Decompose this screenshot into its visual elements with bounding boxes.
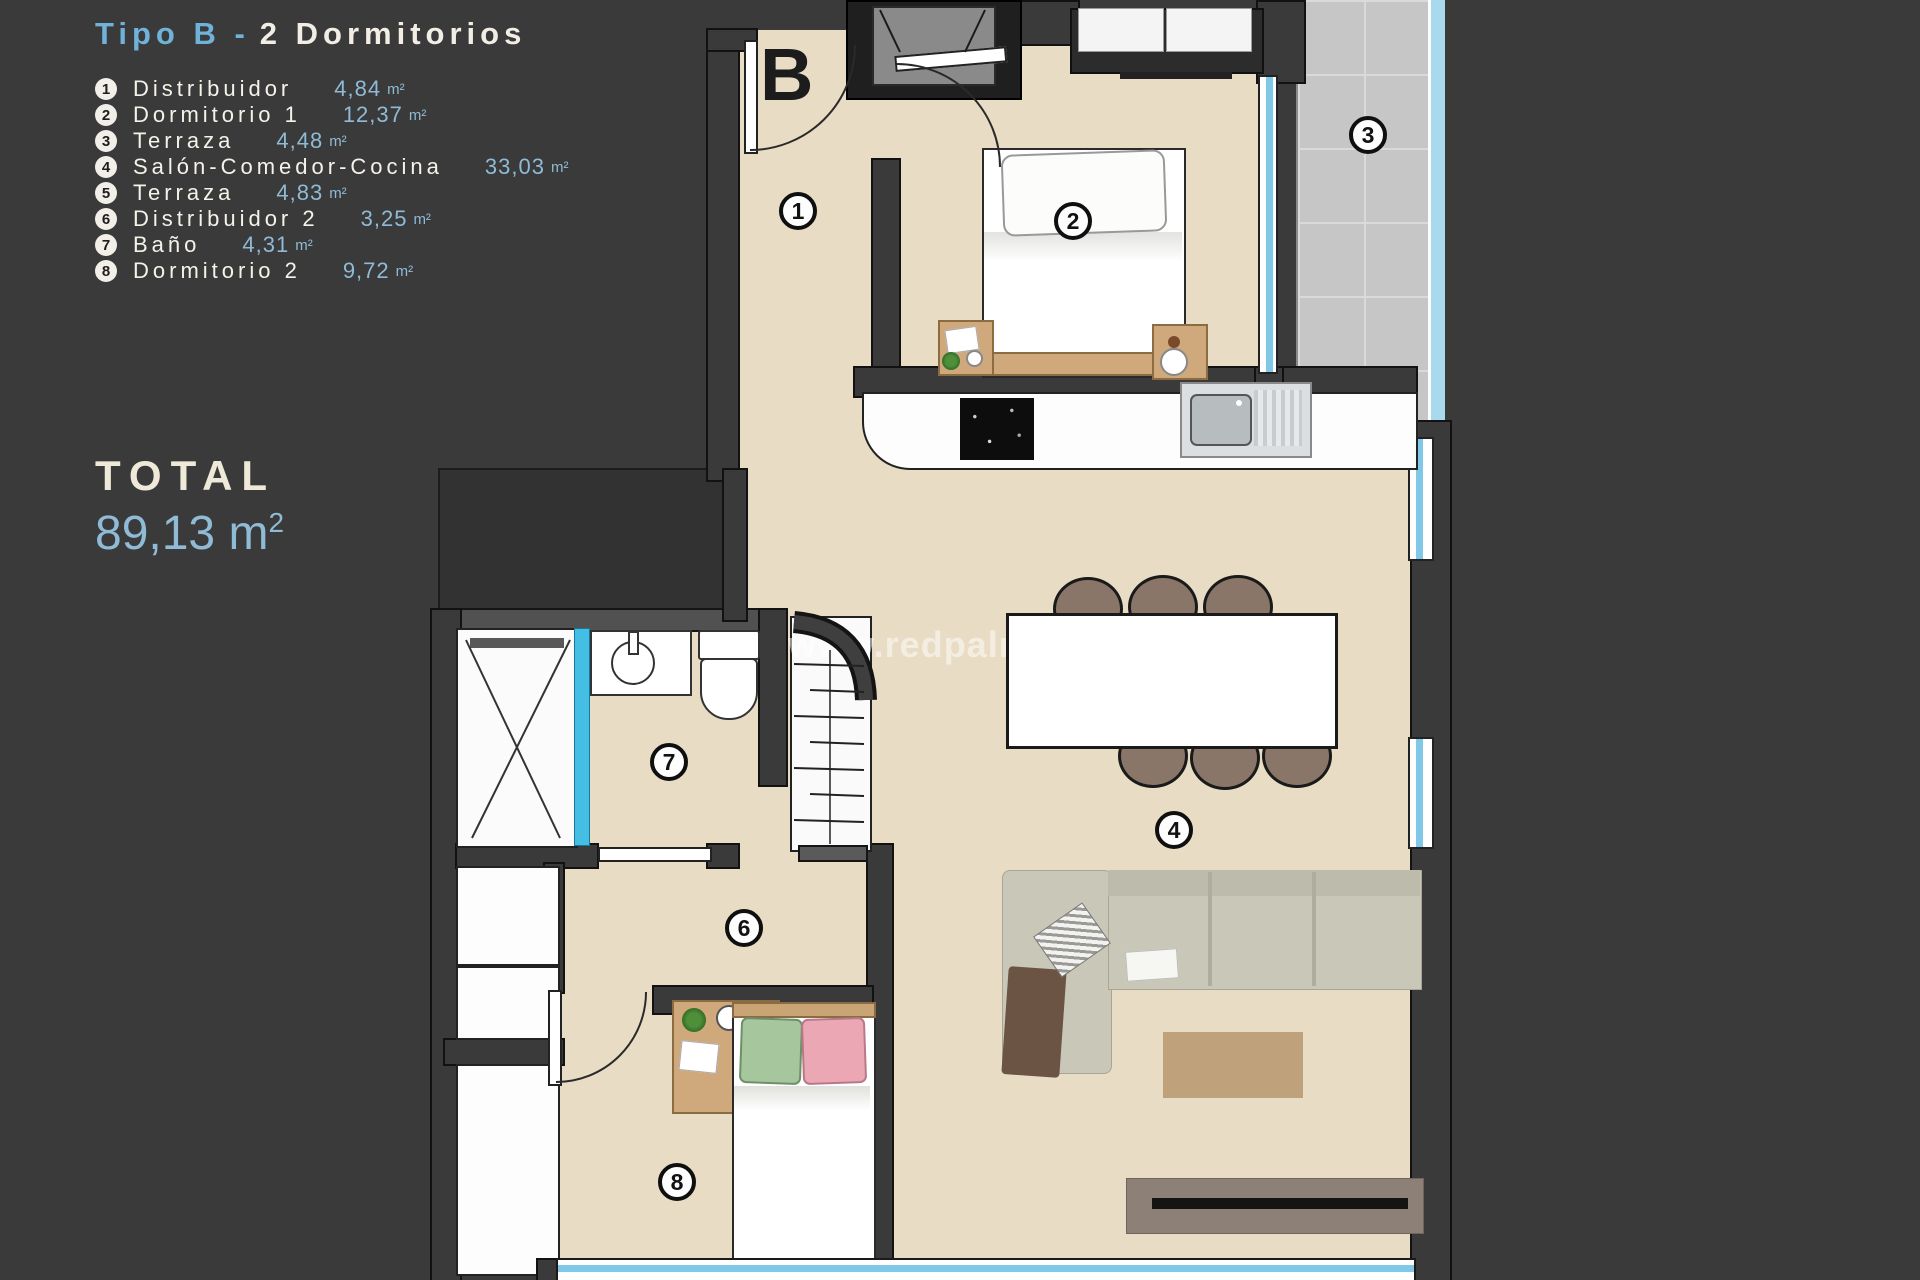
shower-bar — [470, 638, 564, 648]
terrace-glass-railing — [1428, 0, 1445, 420]
bedroom2-paper — [679, 1040, 720, 1074]
page-title-type: Tipo B - — [95, 16, 250, 51]
legend-room-name: Terraza — [133, 180, 234, 206]
bedroom2-bed-fold — [734, 1086, 870, 1110]
area-rug — [1163, 1032, 1303, 1098]
nightstand-cup — [966, 350, 983, 367]
legend-number-badge: 2 — [95, 104, 117, 126]
legend-area-unit: m² — [329, 185, 347, 202]
total-area-number: 89,13 — [95, 507, 215, 560]
legend-number-badge: 1 — [95, 78, 117, 100]
sofa-white-pillow — [1125, 948, 1179, 982]
total-area-value: 89,13 m2 — [95, 506, 284, 561]
legend-room-name: Distribuidor — [133, 76, 292, 102]
kitchen-counter — [862, 392, 1418, 470]
page-title-rest: 2 Dormitorios — [260, 16, 527, 51]
legend-number-badge: 3 — [95, 130, 117, 152]
toilet-tank — [698, 630, 760, 660]
legend-room-area: 4,83 — [276, 180, 323, 206]
stairwell-bottom-wall — [798, 845, 868, 862]
floor-plan-page: Tipo B -2 Dormitorios 1 Distribuidor 4,8… — [0, 0, 1920, 1280]
legend-row: 1 Distribuidor 4,84 m² — [95, 76, 568, 102]
kitchen-sink-drainer — [1254, 390, 1302, 446]
tv-soundbar — [1152, 1198, 1408, 1209]
legend-area-unit: m² — [396, 263, 414, 280]
wall-void-right — [722, 468, 748, 622]
legend-area-unit: m² — [387, 81, 405, 98]
bedroom2-pink-pillow — [801, 1017, 867, 1085]
legend-area-unit: m² — [413, 211, 431, 228]
legend-room-name: Dormitorio 2 — [133, 258, 301, 284]
legend-room-area: 4,84 — [334, 76, 381, 102]
terrace-tiles — [1296, 0, 1430, 424]
bathroom-sliding-door — [598, 847, 712, 862]
legend-room-area: 9,72 — [343, 258, 390, 284]
legend-room-area: 4,31 — [242, 232, 289, 258]
room-label-terrace: 3 — [1349, 116, 1387, 154]
legend-number-badge: 6 — [95, 208, 117, 230]
wall-hall-left — [706, 28, 740, 482]
legend-room-name: Salón-Comedor-Cocina — [133, 154, 443, 180]
terrace5-sliding-door — [556, 1258, 1416, 1280]
legend-row: 7 Baño 4,31 m² — [95, 232, 568, 258]
entry-door-leaf — [744, 40, 758, 154]
legend-row: 3 Terraza 4,48 m² — [95, 128, 568, 154]
bedroom2-green-pillow — [739, 1017, 803, 1085]
dining-table — [1006, 613, 1338, 749]
legend-area-unit: m² — [551, 159, 569, 176]
legend-room-name: Baño — [133, 232, 200, 258]
nightstand-coffee-cup — [1168, 336, 1180, 348]
legend-number-badge: 4 — [95, 156, 117, 178]
legend-row: 4 Salón-Comedor-Cocina 33,03 m² — [95, 154, 568, 180]
total-area-exponent: 2 — [268, 507, 284, 538]
room-label-bathroom: 7 — [650, 743, 688, 781]
room-legend: 1 Distribuidor 4,84 m² 2 Dormitorio 1 12… — [95, 76, 568, 284]
legend-row: 8 Dormitorio 2 9,72 m² — [95, 258, 568, 284]
sofa-backrest — [1108, 870, 1420, 896]
kitchen-sink-drain — [1236, 400, 1242, 406]
legend-room-name: Terraza — [133, 128, 234, 154]
cooktop — [960, 398, 1034, 460]
total-area-unit: m — [228, 507, 268, 560]
living-window-lower — [1408, 737, 1434, 849]
legend-room-name: Distribuidor 2 — [133, 206, 319, 232]
closet-lower — [456, 1064, 560, 1276]
legend-area-unit: m² — [329, 133, 347, 150]
sofa-throw-blanket — [1001, 966, 1066, 1078]
wardrobe-door-right — [1166, 8, 1252, 52]
legend-number-badge: 7 — [95, 234, 117, 256]
bedroom1-terrace-window — [1258, 75, 1278, 374]
sofa-cushion-gap — [1208, 872, 1212, 986]
closet-middle — [456, 966, 560, 1040]
legend-room-area: 33,03 — [485, 154, 545, 180]
wardrobe-door-left — [1078, 8, 1164, 52]
wardrobe-rail — [1120, 72, 1232, 79]
legend-room-area: 12,37 — [343, 102, 403, 128]
legend-row: 5 Terraza 4,83 m² — [95, 180, 568, 206]
legend-number-badge: 5 — [95, 182, 117, 204]
nightstand-plant — [942, 352, 960, 370]
room-label-bedroom2: 8 — [658, 1163, 696, 1201]
legend-row: 2 Dormitorio 1 12,37 m² — [95, 102, 568, 128]
legend-area-unit: m² — [295, 237, 313, 254]
building-core-void — [438, 468, 730, 616]
wall-hall-bedroom — [871, 158, 901, 398]
page-title: Tipo B -2 Dormitorios — [95, 16, 526, 52]
entry-landing-inner — [872, 6, 996, 86]
room-label-bedroom1: 2 — [1054, 202, 1092, 240]
legend-room-name: Dormitorio 1 — [133, 102, 301, 128]
bedroom2-bed-headboard — [732, 1002, 876, 1018]
bedroom2-plant — [682, 1008, 706, 1032]
room-label-living: 4 — [1155, 811, 1193, 849]
wall-closet-divider — [443, 1038, 565, 1066]
shower-glass-panel — [574, 628, 590, 846]
room-label-hall: 1 — [779, 192, 817, 230]
bedroom2-door-leaf — [548, 990, 562, 1086]
closet-upper — [456, 866, 560, 966]
shower-tray — [456, 628, 578, 848]
room-label-hall2: 6 — [725, 909, 763, 947]
legend-room-area: 3,25 — [361, 206, 408, 232]
total-label: TOTAL — [95, 452, 276, 500]
nightstand-plate — [1160, 348, 1188, 376]
wall-bathroom-right — [758, 608, 788, 787]
legend-room-area: 4,48 — [276, 128, 323, 154]
kitchen-sink-bowl — [1190, 394, 1252, 446]
unit-block-letter: B — [760, 38, 813, 112]
bathroom-tap — [628, 631, 639, 655]
toilet-bowl — [700, 658, 758, 720]
legend-number-badge: 8 — [95, 260, 117, 282]
legend-area-unit: m² — [409, 107, 427, 124]
sofa-cushion-gap — [1312, 872, 1316, 986]
legend-row: 6 Distribuidor 2 3,25 m² — [95, 206, 568, 232]
